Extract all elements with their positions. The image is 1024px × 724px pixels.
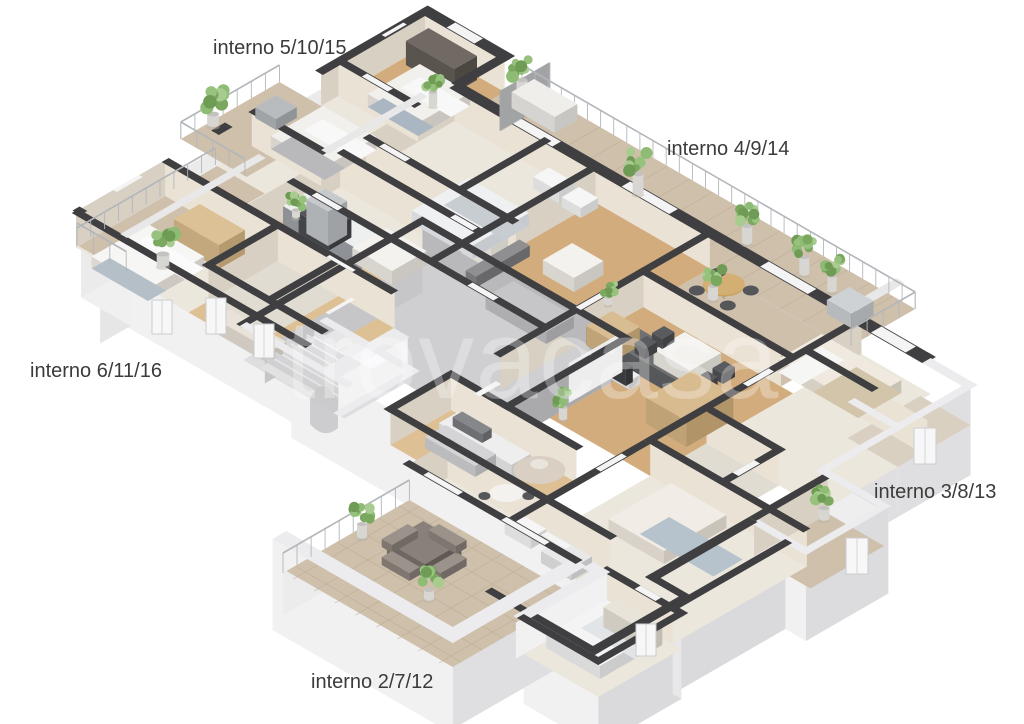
svg-text:interno 3/8/13: interno 3/8/13 — [874, 481, 996, 503]
svg-text:interno 2/7/12: interno 2/7/12 — [311, 671, 433, 693]
svg-text:trovacasa: trovacasa — [285, 297, 780, 422]
svg-text:interno 6/11/16: interno 6/11/16 — [30, 360, 162, 382]
svg-text:interno 5/10/15: interno 5/10/15 — [213, 37, 346, 59]
svg-text:interno 4/9/14: interno 4/9/14 — [667, 138, 789, 160]
